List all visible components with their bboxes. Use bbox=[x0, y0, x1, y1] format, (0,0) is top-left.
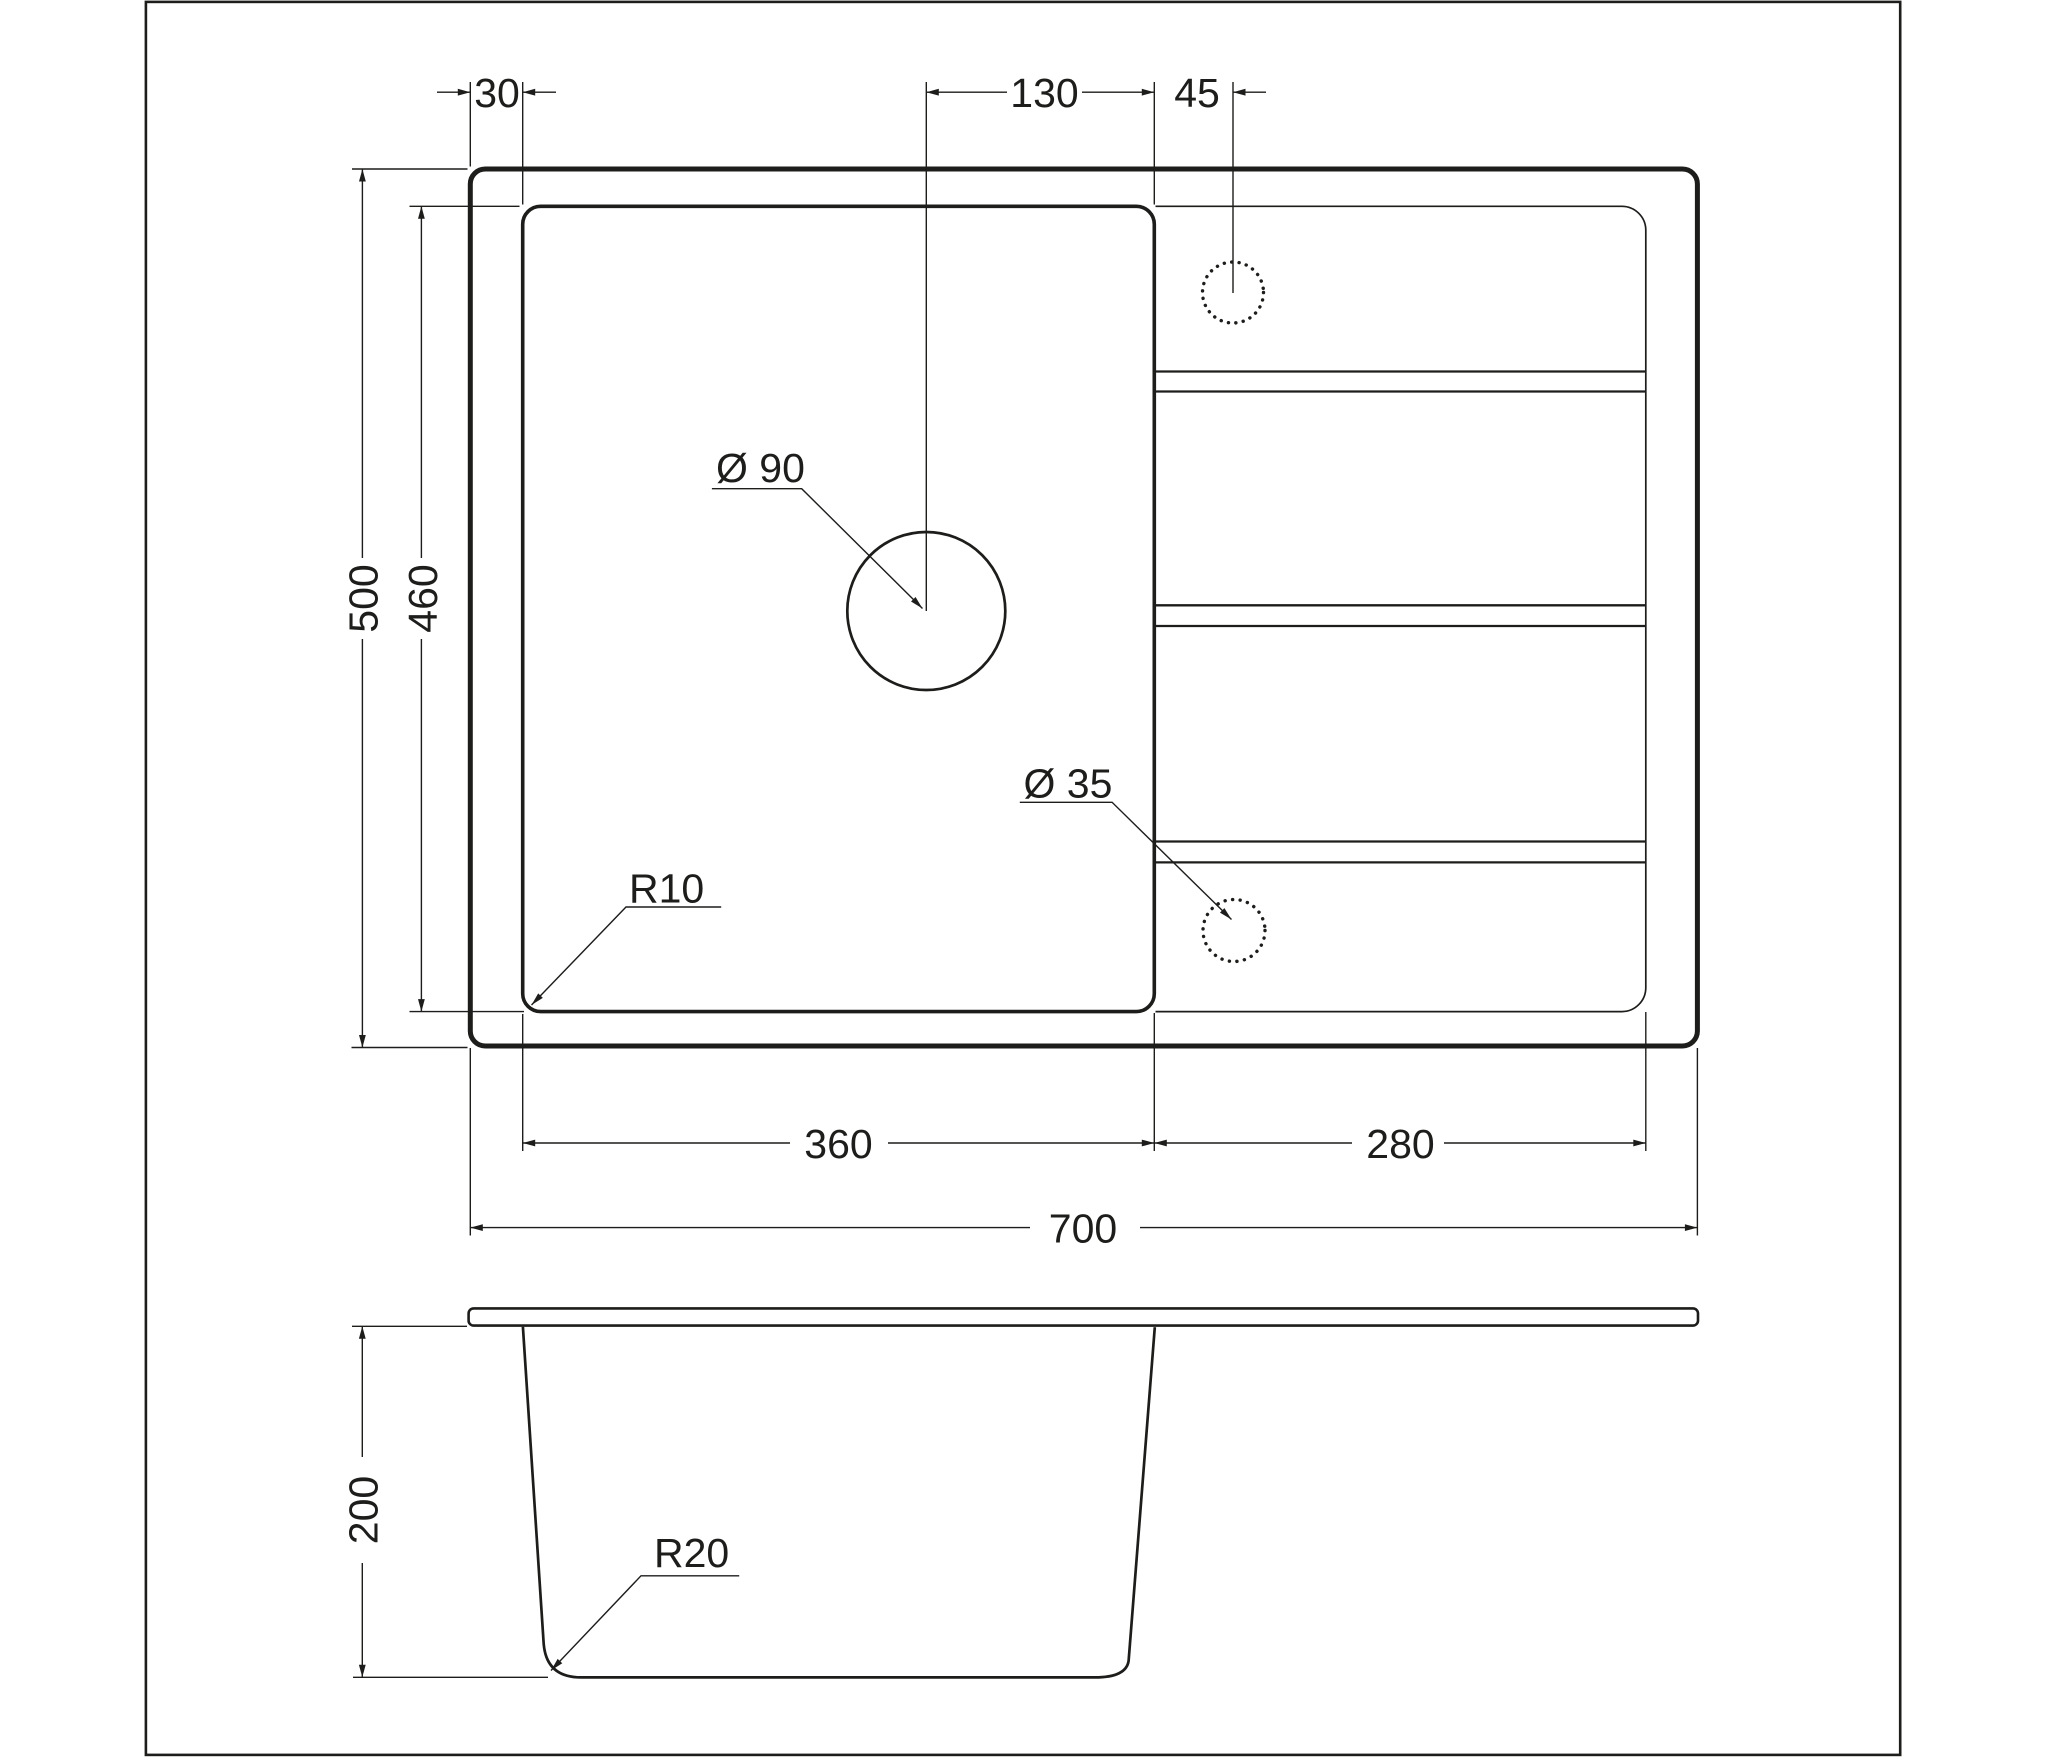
svg-text:R20: R20 bbox=[654, 1530, 729, 1576]
svg-text:Ø 35: Ø 35 bbox=[1024, 761, 1113, 807]
svg-text:Ø 90: Ø 90 bbox=[716, 445, 805, 491]
svg-text:130: 130 bbox=[1010, 70, 1078, 116]
svg-text:45: 45 bbox=[1174, 70, 1220, 116]
svg-text:R10: R10 bbox=[629, 866, 704, 912]
svg-text:200: 200 bbox=[340, 1476, 386, 1544]
svg-text:460: 460 bbox=[400, 564, 446, 632]
svg-text:360: 360 bbox=[804, 1121, 872, 1167]
svg-text:700: 700 bbox=[1049, 1206, 1117, 1252]
svg-text:500: 500 bbox=[340, 564, 386, 632]
svg-text:280: 280 bbox=[1366, 1121, 1434, 1167]
svg-text:30: 30 bbox=[474, 70, 520, 116]
